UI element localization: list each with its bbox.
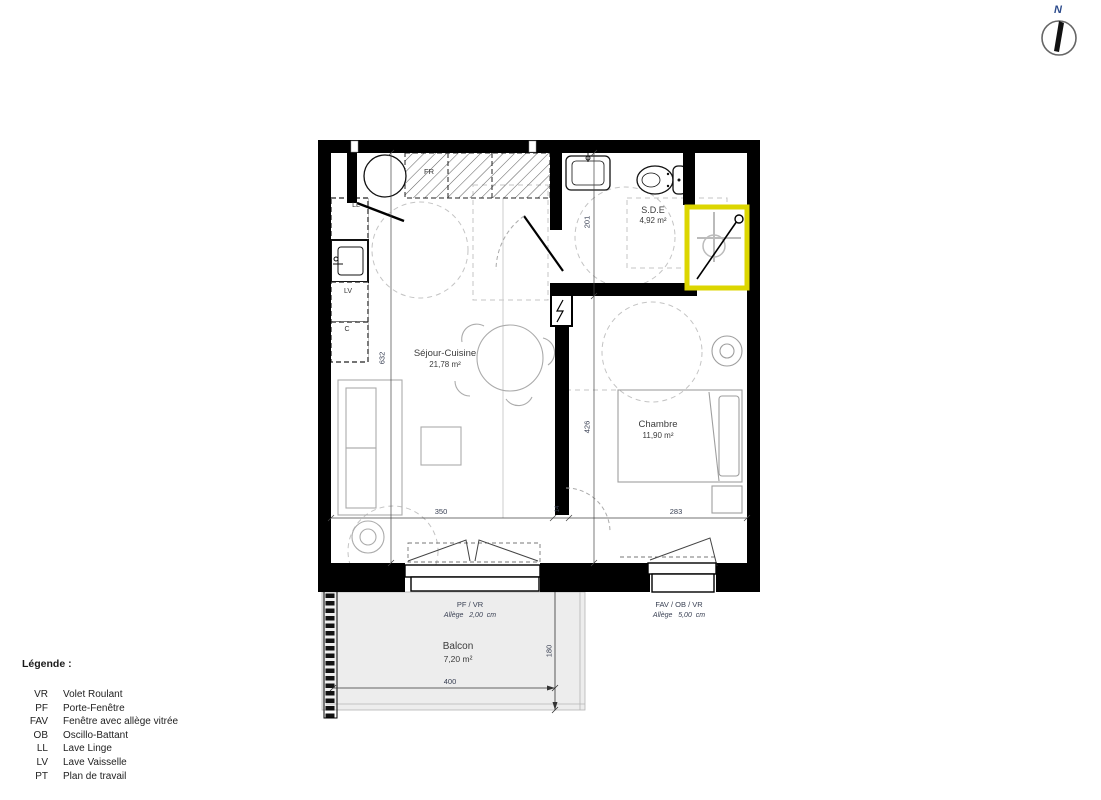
sde-area: 4,92 m² bbox=[639, 217, 666, 225]
chambre-window-type: FAV / OB / VR bbox=[655, 601, 702, 609]
bedroom-door-swing bbox=[566, 488, 610, 532]
bed bbox=[618, 390, 742, 482]
armchair bbox=[352, 521, 384, 553]
legend-label: Porte-Fenêtre bbox=[63, 702, 125, 716]
kitchen-zone bbox=[331, 153, 550, 362]
north-arrow bbox=[1042, 21, 1076, 55]
balcon-area: 7,20 m² bbox=[444, 655, 473, 664]
bathroom-door-swing bbox=[496, 216, 524, 270]
legend-item-lv: LV Lave Vaisselle bbox=[22, 756, 178, 770]
fridge-label: FR bbox=[424, 168, 434, 176]
dim-sejour-width: 350 bbox=[435, 508, 448, 516]
sejour-window-allege: Allège 2,00 cm bbox=[444, 612, 496, 619]
chambre-name: Chambre bbox=[638, 420, 677, 430]
coffee-table bbox=[421, 427, 461, 465]
sejour-window-type: PF / VR bbox=[457, 601, 483, 609]
chambre-area: 11,90 m² bbox=[643, 432, 674, 440]
washbasin bbox=[566, 150, 610, 190]
legend-abbr: LV bbox=[22, 756, 48, 770]
dishwasher-label: LV bbox=[344, 288, 352, 295]
water-heater bbox=[364, 155, 406, 197]
doors bbox=[357, 203, 610, 532]
electrical-panel bbox=[551, 295, 572, 326]
sofa bbox=[338, 380, 402, 515]
legend-item-vr: VR Volet Roulant bbox=[22, 688, 178, 702]
dim-sejour-height: 632 bbox=[378, 352, 386, 365]
dining-table-and-chairs bbox=[455, 324, 555, 405]
sejour-name: Séjour-Cuisine bbox=[414, 349, 476, 359]
dim-sde-height: 201 bbox=[583, 216, 591, 229]
sejour-area: 21,78 m² bbox=[429, 361, 461, 369]
dim-chambre-height: 426 bbox=[583, 421, 591, 434]
legend-label: Lave Linge bbox=[63, 742, 112, 756]
nightstand bbox=[712, 486, 742, 513]
legend-label: Lave Vaisselle bbox=[63, 756, 127, 770]
cupboard-label: C bbox=[344, 326, 349, 333]
dim-chambre-width: 283 bbox=[670, 508, 683, 516]
sejour-window-pf-vr bbox=[405, 540, 540, 591]
north-label: N bbox=[1054, 5, 1062, 16]
legend-abbr: LL bbox=[22, 742, 48, 756]
legend: Légende : VR Volet Roulant PF Porte-Fenê… bbox=[22, 658, 178, 783]
balcon-name: Balcon bbox=[443, 642, 474, 652]
chambre-window-allege: Allège 5,00 cm bbox=[653, 612, 705, 619]
legend-item-pf: PF Porte-Fenêtre bbox=[22, 702, 178, 716]
shower bbox=[687, 207, 747, 288]
sde-name: S.D.E bbox=[641, 206, 665, 215]
legend-abbr: OB bbox=[22, 729, 48, 743]
legend-item-ll: LL Lave Linge bbox=[22, 742, 178, 756]
floor-plan-page: Séjour-Cuisine 21,78 m² S.D.E 4,92 m² Ch… bbox=[0, 0, 1101, 800]
legend-title: Légende : bbox=[22, 658, 178, 670]
dim-balcon-width: 400 bbox=[444, 678, 457, 686]
legend-label: Fenêtre avec allège vitrée bbox=[63, 715, 178, 729]
legend-item-pt: PT Plan de travail bbox=[22, 770, 178, 784]
legend-label: Oscillo-Battant bbox=[63, 729, 128, 743]
washer-label: LL bbox=[352, 202, 360, 209]
legend-abbr: VR bbox=[22, 688, 48, 702]
legend-item-fav: FAV Fenêtre avec allège vitrée bbox=[22, 715, 178, 729]
legend-abbr: FAV bbox=[22, 715, 48, 729]
balcony-separator-panel bbox=[324, 591, 337, 718]
legend-label: Plan de travail bbox=[63, 770, 126, 784]
legend-abbr: PF bbox=[22, 702, 48, 716]
legend-item-ob: OB Oscillo-Battant bbox=[22, 729, 178, 743]
kitchen-sink bbox=[331, 240, 368, 282]
dim-balcon-depth: 180 bbox=[545, 645, 553, 658]
stool bbox=[712, 336, 742, 366]
dim-wall: 14 bbox=[555, 506, 561, 513]
legend-label: Volet Roulant bbox=[63, 688, 123, 702]
toilet bbox=[637, 166, 686, 194]
furniture bbox=[338, 324, 742, 553]
legend-abbr: PT bbox=[22, 770, 48, 784]
